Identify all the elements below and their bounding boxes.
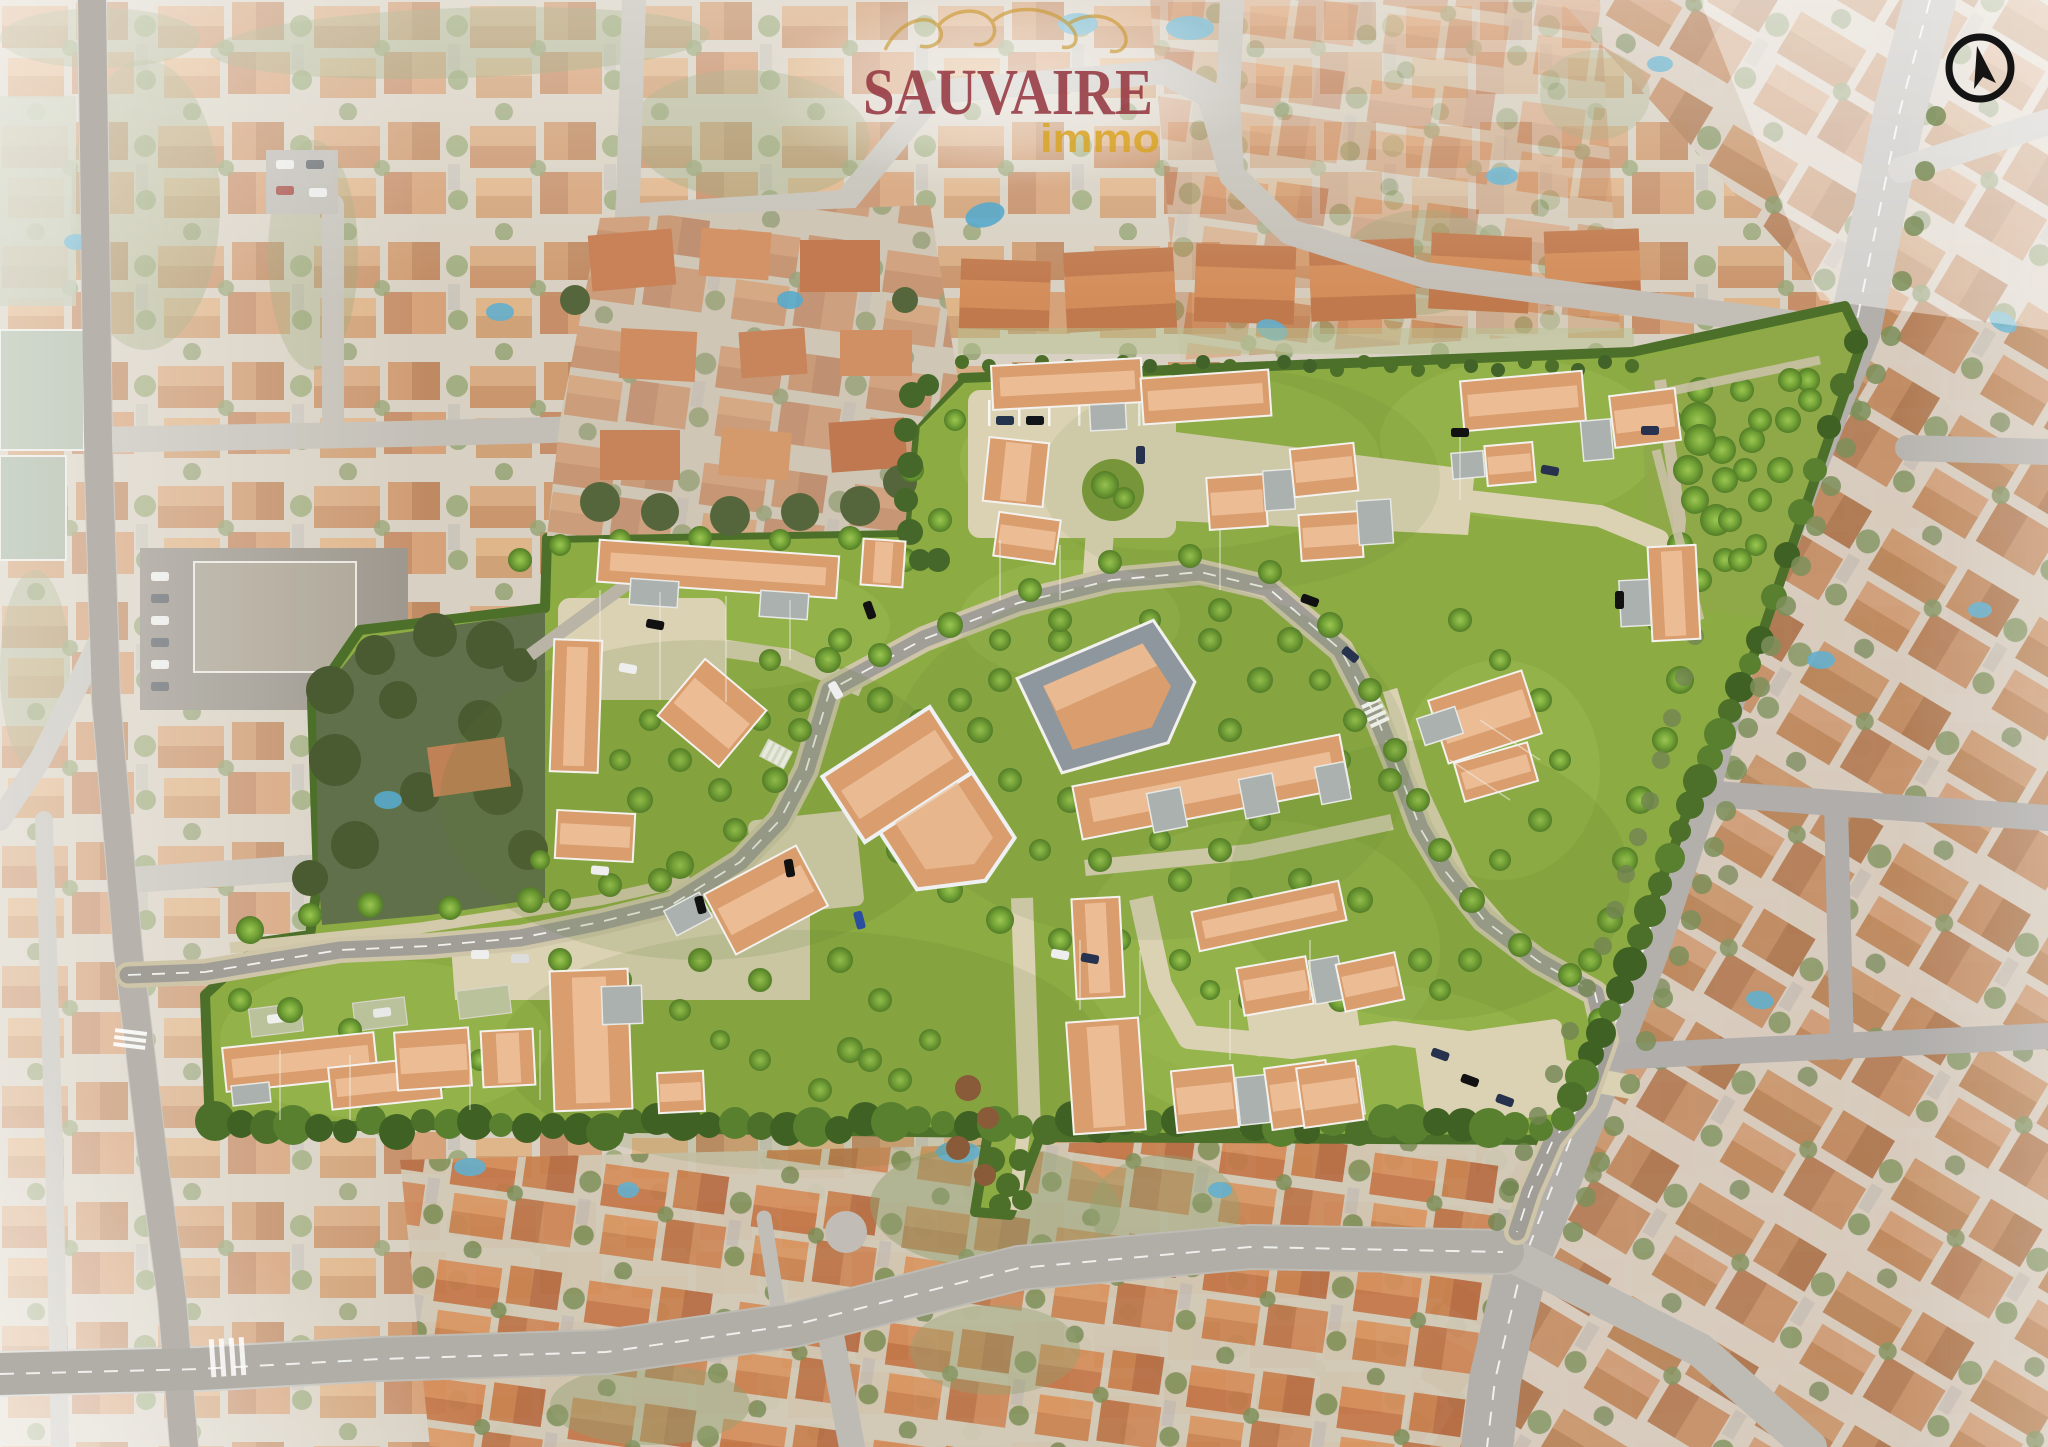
- svg-text:immo: immo: [1040, 117, 1160, 161]
